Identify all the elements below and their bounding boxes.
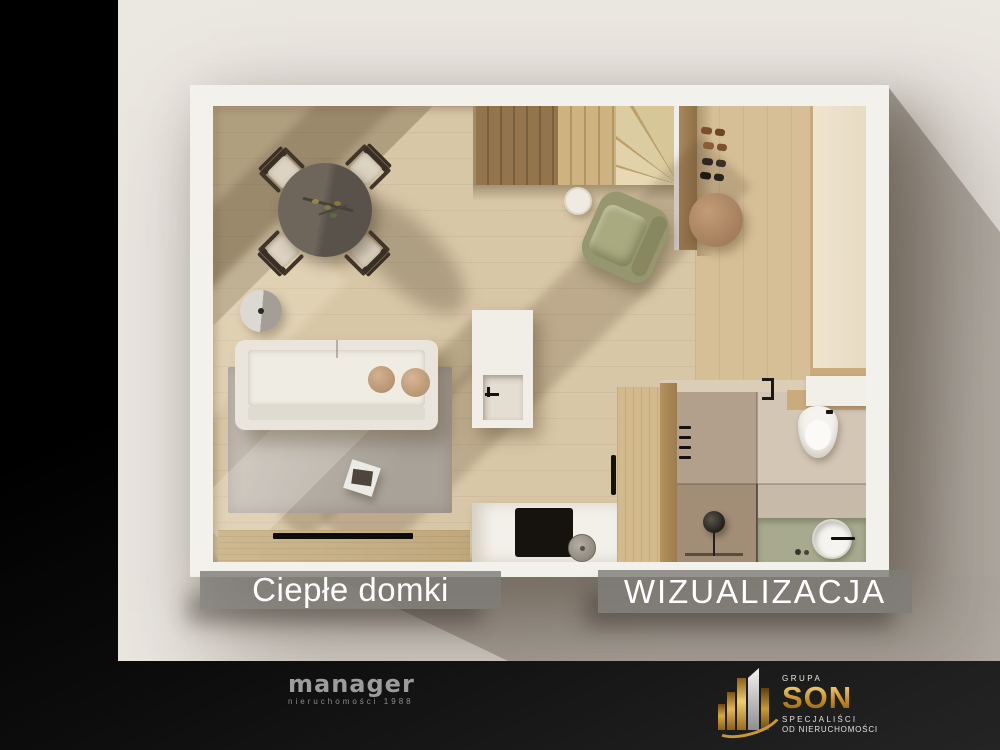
shoe xyxy=(714,128,725,136)
side-table-detail xyxy=(258,308,264,314)
floor-plan-model xyxy=(190,85,889,577)
son-logo-text: GRUPA SON SPECJALIŚCI OD NIERUCHOMOŚCI xyxy=(782,674,890,734)
freestanding-fireplace xyxy=(472,310,533,428)
television xyxy=(273,533,413,539)
coffee-table-book xyxy=(351,469,373,487)
toilet-flush-button xyxy=(826,410,833,414)
wooden-door xyxy=(617,387,660,562)
bathroom-wood-wall xyxy=(660,383,677,562)
towel-hook xyxy=(679,436,691,439)
branch-leaf xyxy=(334,201,341,206)
project-label: Ciepłe domki xyxy=(252,571,449,609)
branch-leaf xyxy=(330,213,337,218)
bathroom-door-handle xyxy=(762,378,774,400)
watermark-bar-left: Ciepłe domki xyxy=(200,571,501,609)
armchair-side-table xyxy=(564,187,592,215)
stair-mid-treads xyxy=(558,106,616,185)
winder-staircase xyxy=(473,106,676,185)
door-handle xyxy=(611,455,616,495)
shower-head xyxy=(703,511,725,533)
shower-drain xyxy=(685,553,743,556)
visualization-photo: Ciepłe domki WIZUALIZACJA xyxy=(118,0,1000,661)
branch-leaf xyxy=(312,199,319,204)
manager-logo-name: manager xyxy=(288,674,468,694)
sofa-seam xyxy=(336,340,338,358)
toiletry-item xyxy=(795,549,801,555)
interior-floor xyxy=(213,106,866,562)
son-skyline-icon xyxy=(718,670,780,736)
sofa-backrest xyxy=(248,406,425,420)
shoe xyxy=(700,172,711,180)
manager-logo: manager nieruchomości 1988 xyxy=(288,674,468,714)
son-logo: GRUPA SON SPECJALIŚCI OD NIERUCHOMOŚCI xyxy=(710,660,890,744)
pot-lid-knob xyxy=(580,546,585,551)
fire-tool xyxy=(487,387,490,397)
towel-hook xyxy=(679,426,691,429)
round-pouf xyxy=(689,193,743,247)
branch-leaf xyxy=(324,205,331,210)
shoe xyxy=(716,143,727,151)
manager-logo-tagline: nieruchomości 1988 xyxy=(288,697,468,706)
wardrobe-cabinet xyxy=(810,106,866,380)
shoe xyxy=(703,142,714,150)
shoe xyxy=(702,158,713,166)
toilet-seat xyxy=(805,420,831,450)
bathroom-cabinet xyxy=(806,376,866,406)
swoosh-arc-icon xyxy=(706,690,787,745)
towel-hook xyxy=(679,456,691,459)
sofa xyxy=(235,340,438,430)
round-dining-table xyxy=(278,163,372,257)
shoe xyxy=(713,173,724,181)
towel-hook xyxy=(679,446,691,449)
son-subtitle-1: SPECJALIŚCI xyxy=(782,715,890,724)
kitchen-counter xyxy=(472,503,617,562)
watermark-bar-right: WIZUALIZACJA xyxy=(598,570,912,613)
shoe xyxy=(701,127,712,135)
sink-faucet xyxy=(831,537,855,540)
round-pillow xyxy=(401,368,430,397)
visualization-label: WIZUALIZACJA xyxy=(624,573,886,611)
shoe xyxy=(715,159,726,167)
induction-cooktop xyxy=(515,508,573,557)
round-side-table xyxy=(240,290,282,332)
toiletry-item xyxy=(804,550,809,555)
firebox xyxy=(483,375,523,420)
stair-lower-treads xyxy=(476,106,558,185)
son-subtitle-2: OD NIERUCHOMOŚCI xyxy=(782,725,890,734)
son-name-label: SON xyxy=(782,683,890,713)
sofa-seat xyxy=(248,350,425,406)
tile-grout xyxy=(677,483,866,485)
round-pillow xyxy=(368,366,395,393)
marketing-image-canvas: Ciepłe domki WIZUALIZACJA manager nieruc… xyxy=(0,0,1000,750)
